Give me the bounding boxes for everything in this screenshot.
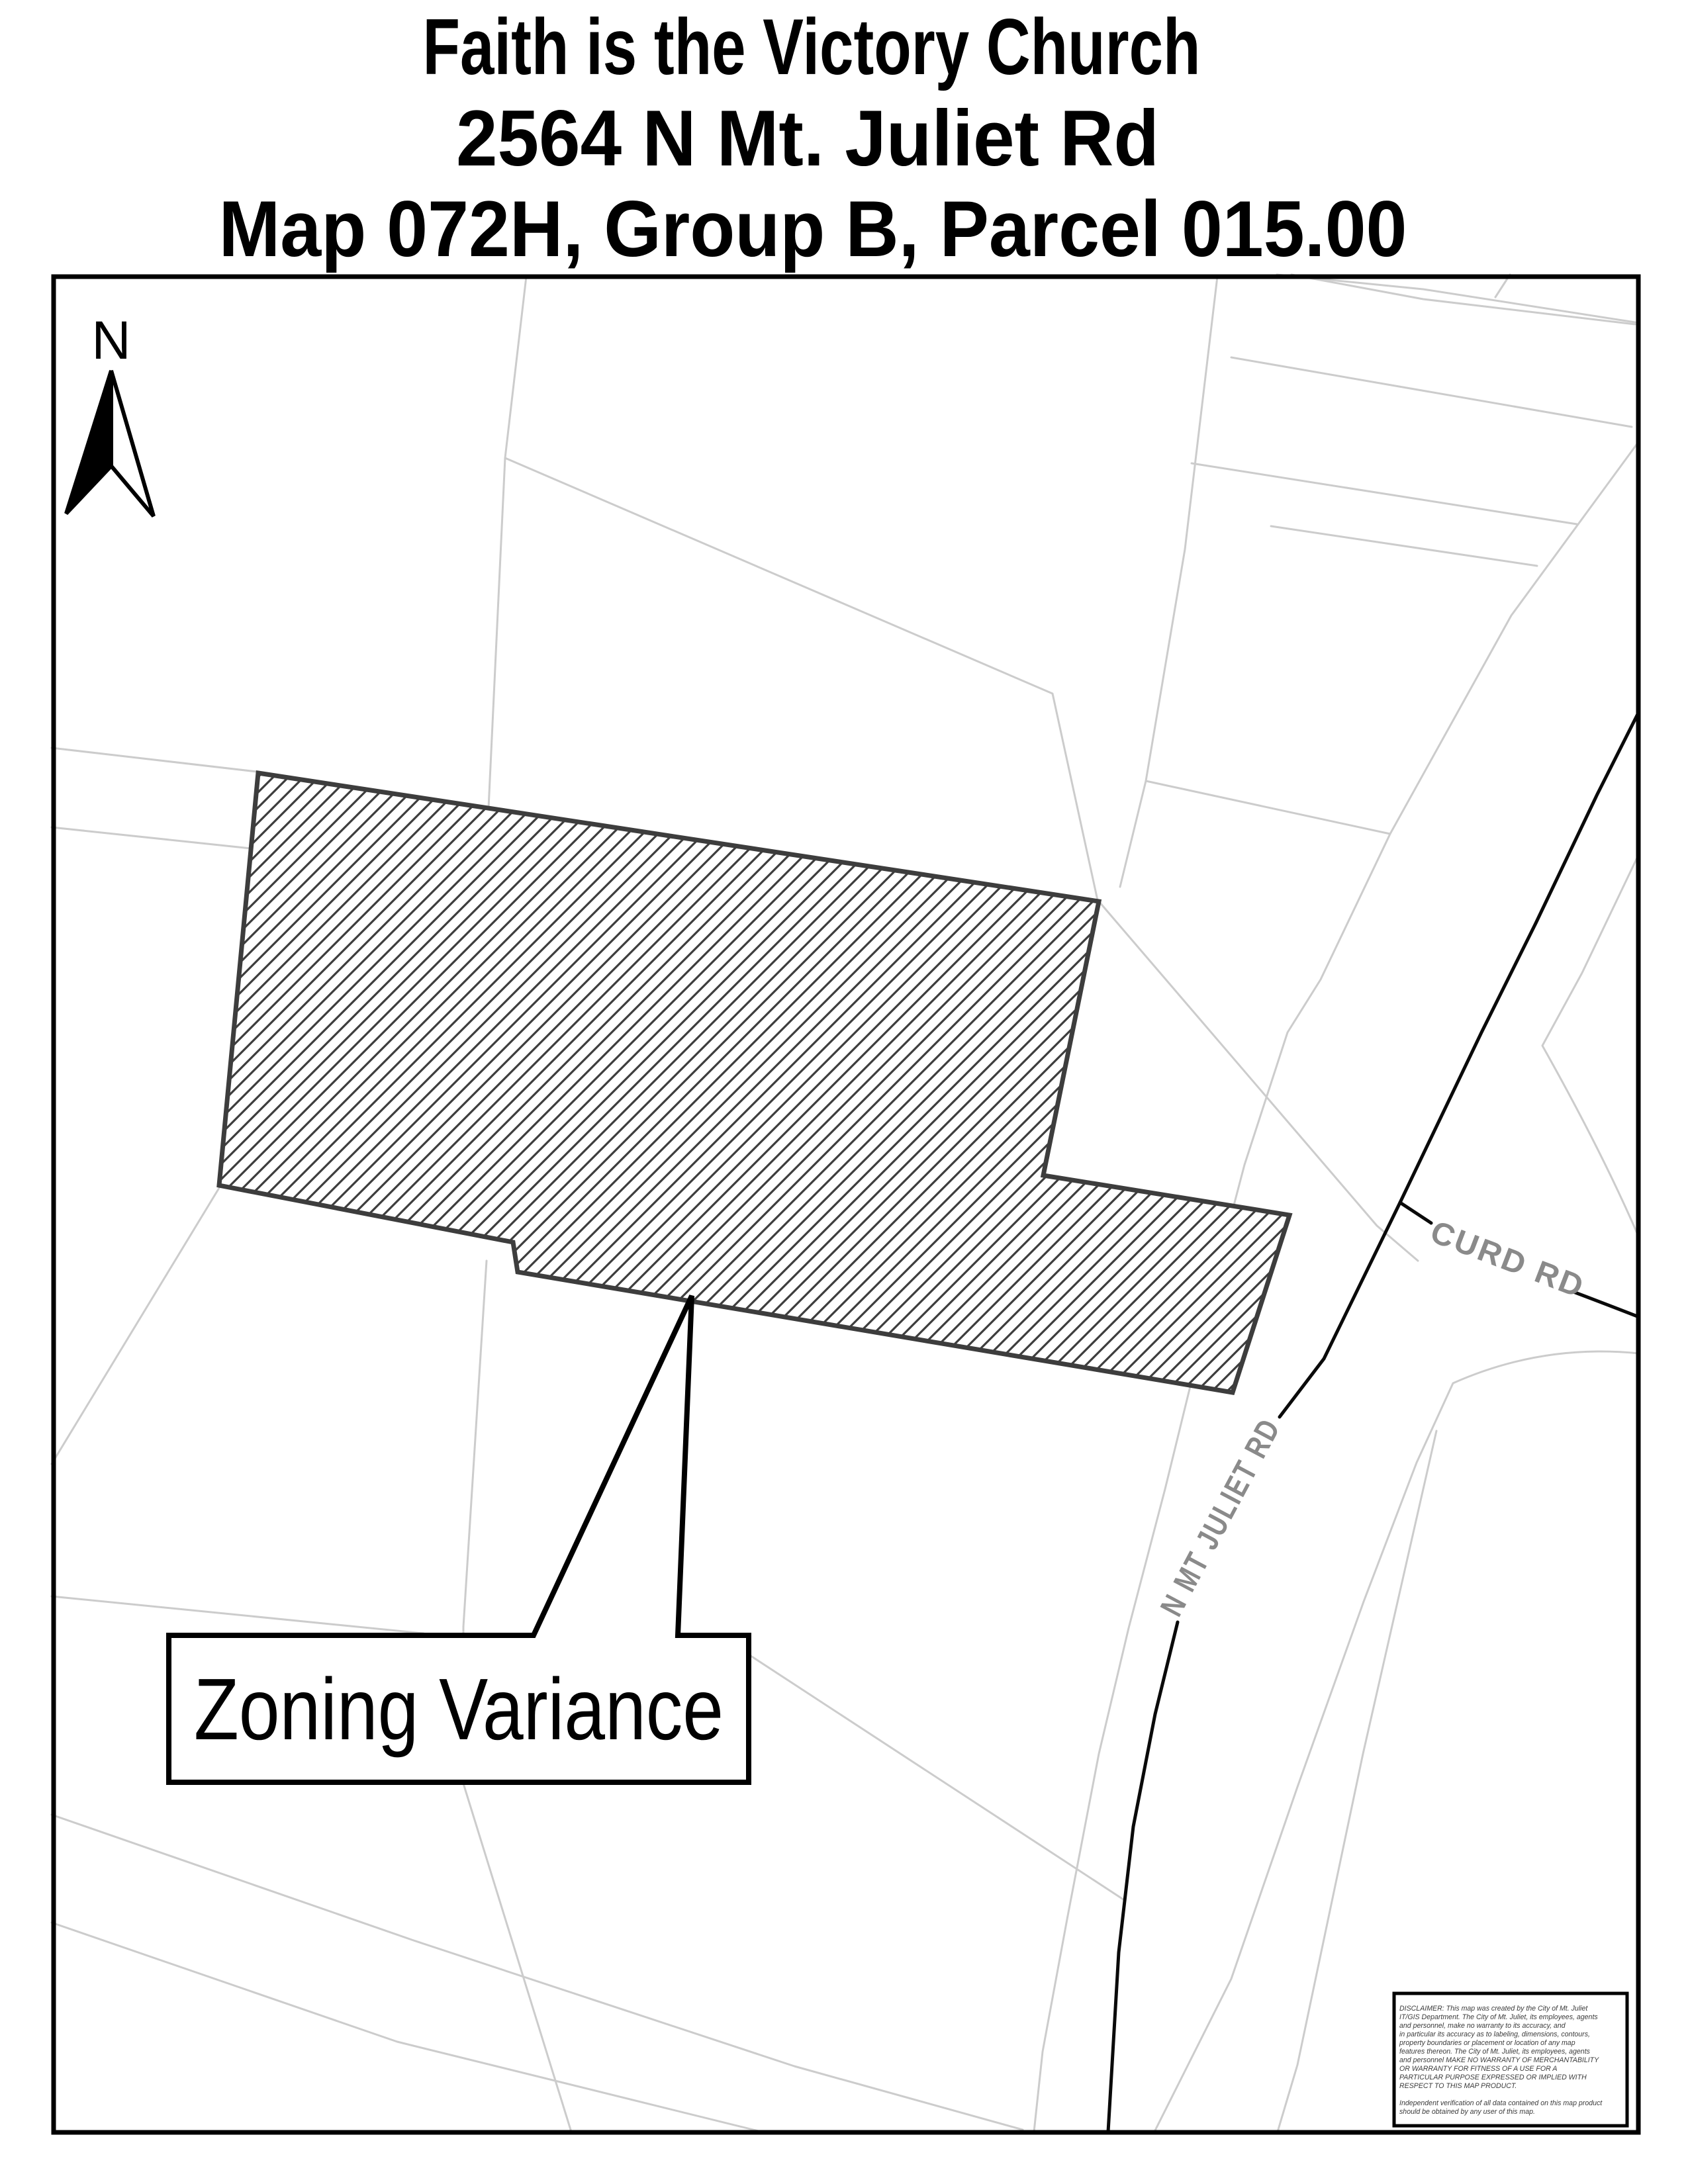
title-line-1: Faith is the Victory Church (423, 3, 1201, 91)
callout-label: Zoning Variance (194, 1661, 724, 1758)
north-arrow-n-label: N (91, 310, 130, 371)
disclaimer-text-line: features thereon. The City of Mt. Juliet… (1399, 2048, 1591, 2056)
disclaimer-text-line: in particular its accuracy as to labelin… (1399, 2030, 1590, 2038)
title-line-3: Map 072H, Group B, Parcel 015.00 (219, 185, 1407, 273)
disclaimer-text-line: and personnel MAKE NO WARRANTY OF MERCHA… (1399, 2056, 1599, 2064)
disclaimer-text-line: OR WARRANTY FOR FITNESS OF A USE FOR A (1399, 2065, 1557, 2073)
disclaimer-text-line: Independent verification of all data con… (1399, 2099, 1603, 2107)
disclaimer-text-line: DISCLAIMER: This map was created by the … (1399, 2005, 1588, 2013)
disclaimer-text-line: should be obtained by any user of this m… (1399, 2108, 1535, 2116)
disclaimer-text-line: property boundaries or placement or loca… (1399, 2039, 1575, 2047)
title-line-2: 2564 N Mt. Juliet Rd (456, 94, 1159, 183)
page: { "title": { "line1": "Faith is the Vict… (0, 0, 1688, 2184)
disclaimer-box: DISCLAIMER: This map was created by the … (1394, 1993, 1627, 2126)
disclaimer-text-line: PARTICULAR PURPOSE EXPRESSED OR IMPLIED … (1399, 2073, 1587, 2081)
disclaimer-text-line: and personnel, make no warranty to its a… (1399, 2022, 1566, 2030)
zoning-map-canvas: Faith is the Victory Church 2564 N Mt. J… (0, 0, 1688, 2184)
disclaimer-text-line: IT/GIS Department. The City of Mt. Julie… (1399, 2013, 1598, 2021)
disclaimer-text-line: RESPECT TO THIS MAP PRODUCT. (1399, 2082, 1517, 2090)
